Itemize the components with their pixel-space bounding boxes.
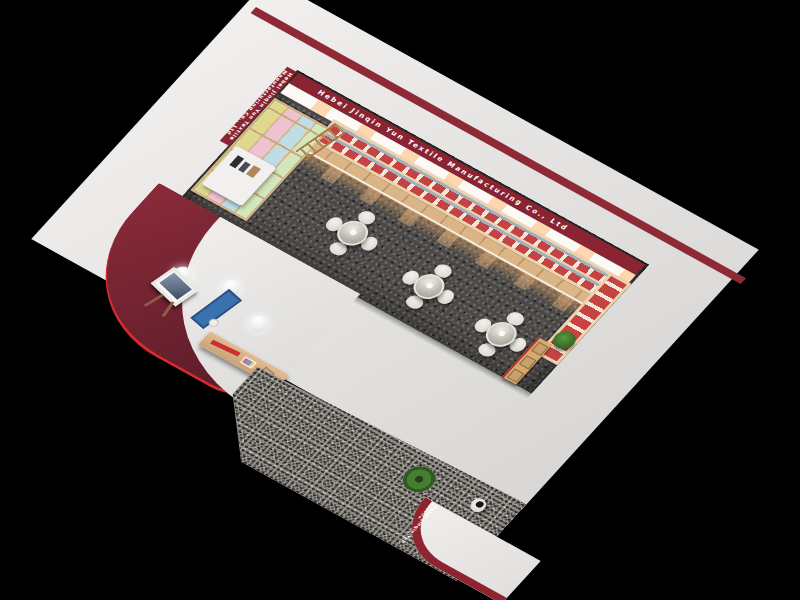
showroom-scene: Hebei Jinqin Yun Textile Manufacturing C… xyxy=(0,2,777,599)
render-canvas: Hebei Jinqin Yun Textile Manufacturing C… xyxy=(0,0,800,600)
sample-box xyxy=(240,356,257,368)
display-box xyxy=(519,355,537,369)
table-set xyxy=(386,252,473,321)
